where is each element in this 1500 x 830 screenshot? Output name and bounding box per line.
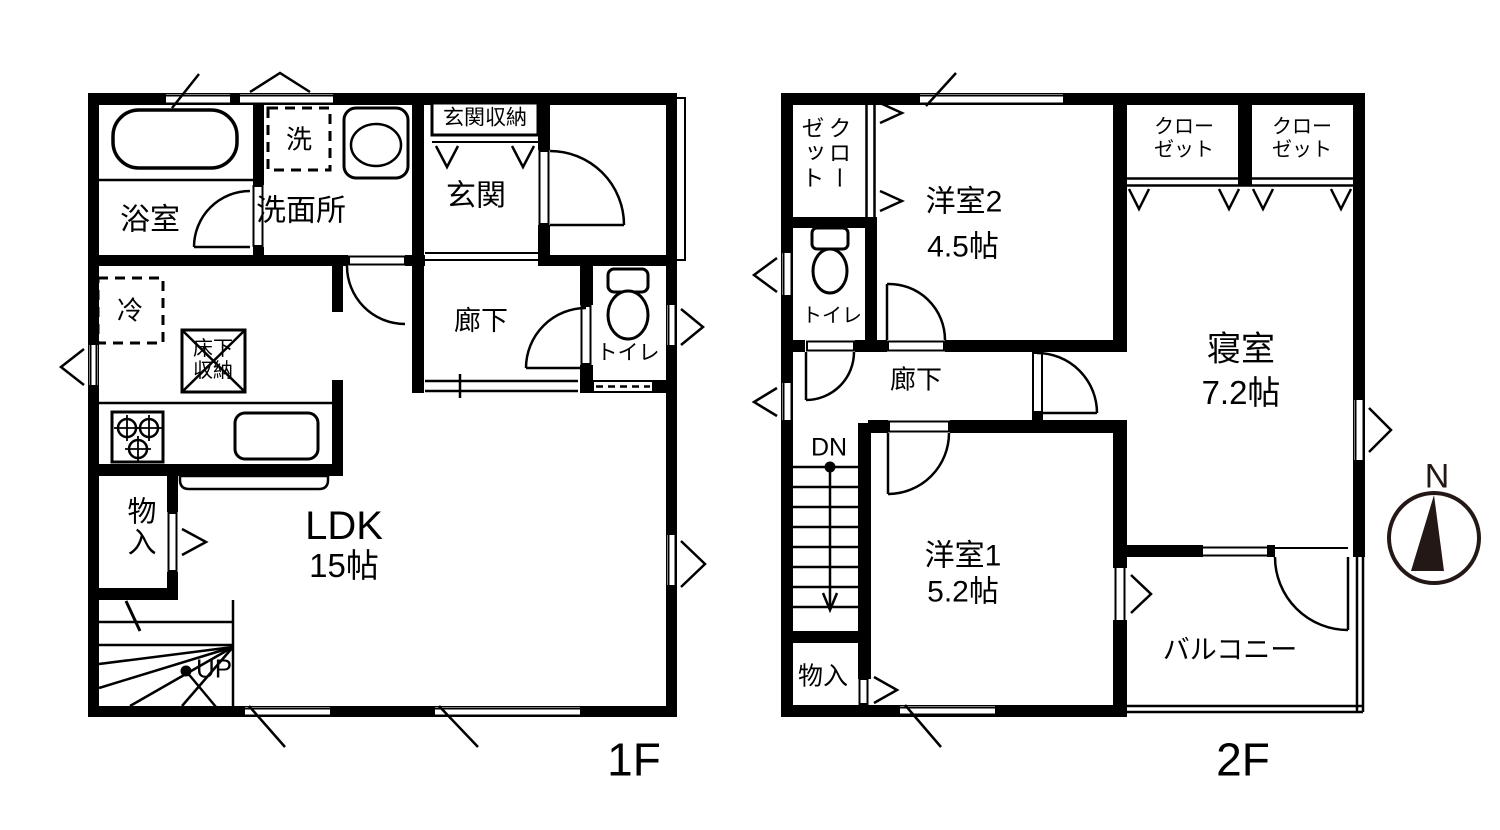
f2-stairs: [793, 462, 858, 611]
f1-label-fridge: 冷: [117, 297, 143, 326]
f2-label-bedroom: 寝室: [1207, 331, 1275, 368]
f2-label-toilet: トイレ: [802, 305, 862, 327]
f1-label-washer: 洗: [286, 126, 312, 155]
f2-label-hallway: 廊下: [890, 366, 942, 395]
f1-label-storage: 物入: [118, 496, 160, 572]
f1-fixtures: [98, 103, 648, 489]
counter-front: [180, 476, 328, 489]
f1-wall-bottom: [88, 706, 677, 717]
f1-label-ldk: LDK: [305, 504, 383, 548]
f1-label-bath: 浴室: [120, 204, 180, 237]
f2-toilet-bowl-icon: [813, 249, 847, 293]
f2-label-closet-left: クローゼット: [797, 116, 851, 192]
kitchen-sink-icon: [235, 413, 318, 459]
f1-label-entrance: 玄関: [446, 180, 506, 213]
f2-floor-label: 2F: [1216, 735, 1270, 786]
floor1-plan: [88, 93, 677, 717]
f2-dn-dot: [825, 462, 836, 473]
f1-toilet-tank-icon: [608, 269, 648, 292]
compass-north-label: N: [1425, 458, 1450, 495]
f2-fixtures: [812, 228, 848, 293]
f1-label-ldk-size: 15帖: [309, 548, 379, 584]
f2-label-balcony: バルコニー: [1163, 636, 1297, 666]
f2-label-closet-1: クロー ゼット: [1154, 116, 1214, 162]
f2-label-western1-size: 5.2帖: [927, 576, 999, 609]
f1-label-washroom: 洗面所: [256, 195, 346, 228]
bathtub-icon: [113, 110, 237, 168]
f2-label-storage: 物入: [798, 663, 848, 691]
f1-floor-label: 1F: [607, 735, 661, 786]
f2-wall-top: [781, 93, 1365, 105]
f2-label-western2-size: 4.5帖: [927, 231, 999, 264]
f2-toilet-tank-icon: [812, 228, 848, 249]
f1-label-entrance-storage: 玄関収納: [443, 106, 527, 129]
f2-label-western2: 洋室2: [926, 186, 1003, 219]
f1-toilet-bowl-icon: [608, 291, 648, 339]
f1-label-underfloor-storage: 床下 収納: [193, 338, 233, 382]
f2-label-western1: 洋室1: [925, 540, 1002, 573]
f1-wall-right: [666, 93, 677, 717]
f2-label-dn: DN: [811, 434, 847, 462]
f2-label-closet-2: クロー ゼット: [1272, 116, 1332, 162]
f2-wall-right: [1353, 93, 1365, 557]
compass-icon: [1389, 493, 1479, 583]
f1-label-up: UP: [196, 655, 232, 684]
f1-doors: [169, 146, 653, 571]
f1-wall-left: [88, 93, 99, 717]
f1-label-toilet: トイレ: [597, 341, 660, 364]
floorplan-page: 浴室 洗 洗面所 玄関収納 玄関 廊下 トイレ 冷 床下 収納 LDK 15帖 …: [0, 0, 1500, 830]
f1-label-hallway: 廊下: [454, 307, 508, 337]
f2-label-bedroom-size: 7.2帖: [1202, 375, 1281, 411]
